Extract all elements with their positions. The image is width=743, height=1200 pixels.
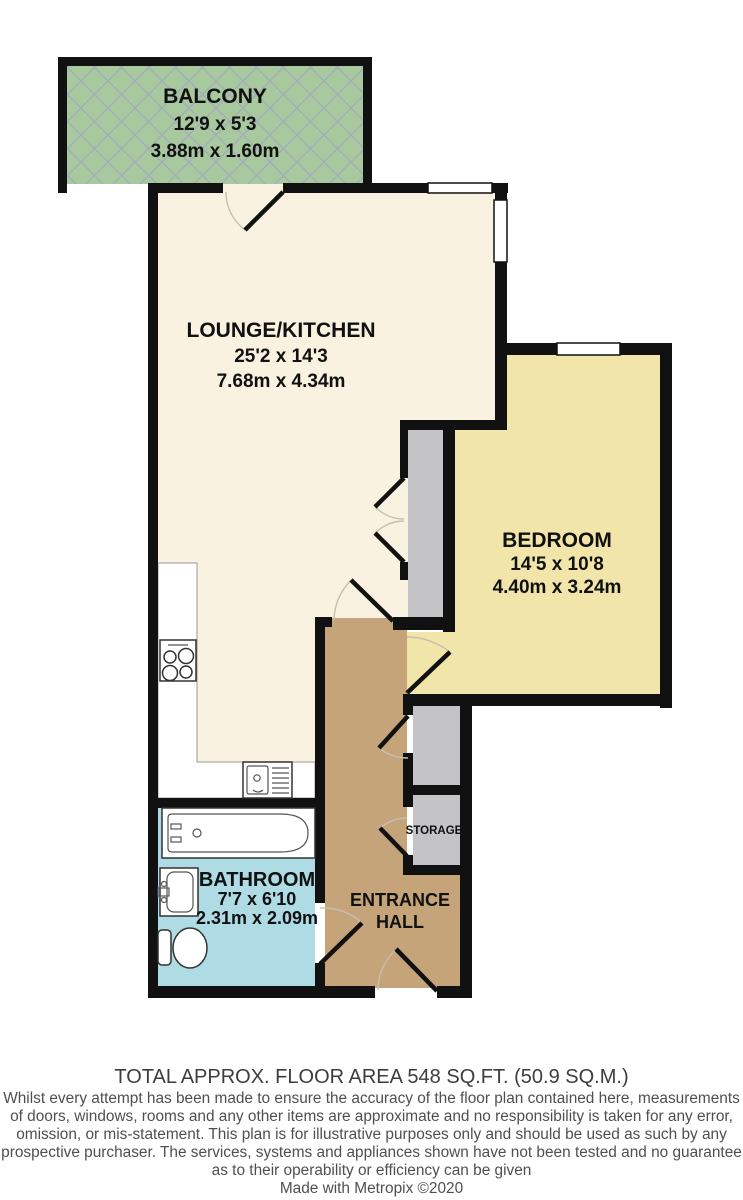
basin-icon <box>158 868 198 916</box>
balcony-dims-metric: 3.88m x 1.60m <box>151 141 280 162</box>
footer: TOTAL APPROX. FLOOR AREA 548 SQ.FT. (50.… <box>0 1064 743 1198</box>
kitchen-sink-icon <box>243 762 292 798</box>
bathroom-dims-metric: 2.31m x 2.09m <box>196 908 318 928</box>
disclaimer-line: of doors, windows, rooms and any other i… <box>0 1108 743 1126</box>
disclaimer-line: prospective purchaser. The services, sys… <box>0 1144 743 1162</box>
stove-icon <box>160 640 196 681</box>
lounge-kitchen-dims-imperial: 25'2 x 14'3 <box>234 346 328 367</box>
toilet-icon <box>158 928 207 968</box>
wardrobe-cupboard <box>408 428 443 617</box>
entrance-hall-floor <box>325 618 407 988</box>
entrance-hall-label-line2: HALL <box>376 912 424 932</box>
disclaimer-line: omission, or mis-statement. This plan is… <box>0 1126 743 1144</box>
storage-cupboard-upper <box>413 706 460 785</box>
disclaimer-line: Whilst every attempt has been made to en… <box>0 1090 743 1108</box>
storage-label: STORAGE <box>406 825 463 837</box>
disclaimer-line: as to their operability or efficiency ca… <box>0 1162 743 1180</box>
bathroom-label: BATHROOM <box>199 869 315 891</box>
lounge-kitchen-dims-metric: 7.68m x 4.34m <box>217 371 346 392</box>
floorplan-page: { "rooms": { "balcony": {"name": "BALCON… <box>0 0 743 1200</box>
metropix-credit: Made with Metropix ©2020 <box>0 1180 743 1198</box>
balcony-dims-imperial: 12'9 x 5'3 <box>174 114 257 135</box>
bedroom-dims-metric: 4.40m x 3.24m <box>493 577 622 598</box>
bathtub-icon <box>162 808 315 858</box>
bedroom-label: BEDROOM <box>502 529 612 552</box>
balcony-label: BALCONY <box>163 85 267 108</box>
bedroom-window <box>557 343 620 355</box>
total-floor-area: TOTAL APPROX. FLOOR AREA 548 SQ.FT. (50.… <box>0 1064 743 1090</box>
bathroom-dims-imperial: 7'7 x 6'10 <box>218 889 297 909</box>
balcony-door-threshold <box>223 184 283 194</box>
bedroom-dims-imperial: 14'5 x 10'8 <box>510 554 604 575</box>
entrance-hall-label-line1: ENTRANCE <box>350 890 450 910</box>
lounge-window-top <box>428 183 492 193</box>
lounge-kitchen-label: LOUNGE/KITCHEN <box>187 319 376 342</box>
lounge-window-right <box>494 200 507 262</box>
floorplan-drawing: BALCONY 12'9 x 5'3 3.88m x 1.60m LOUNGE/… <box>0 0 743 1060</box>
